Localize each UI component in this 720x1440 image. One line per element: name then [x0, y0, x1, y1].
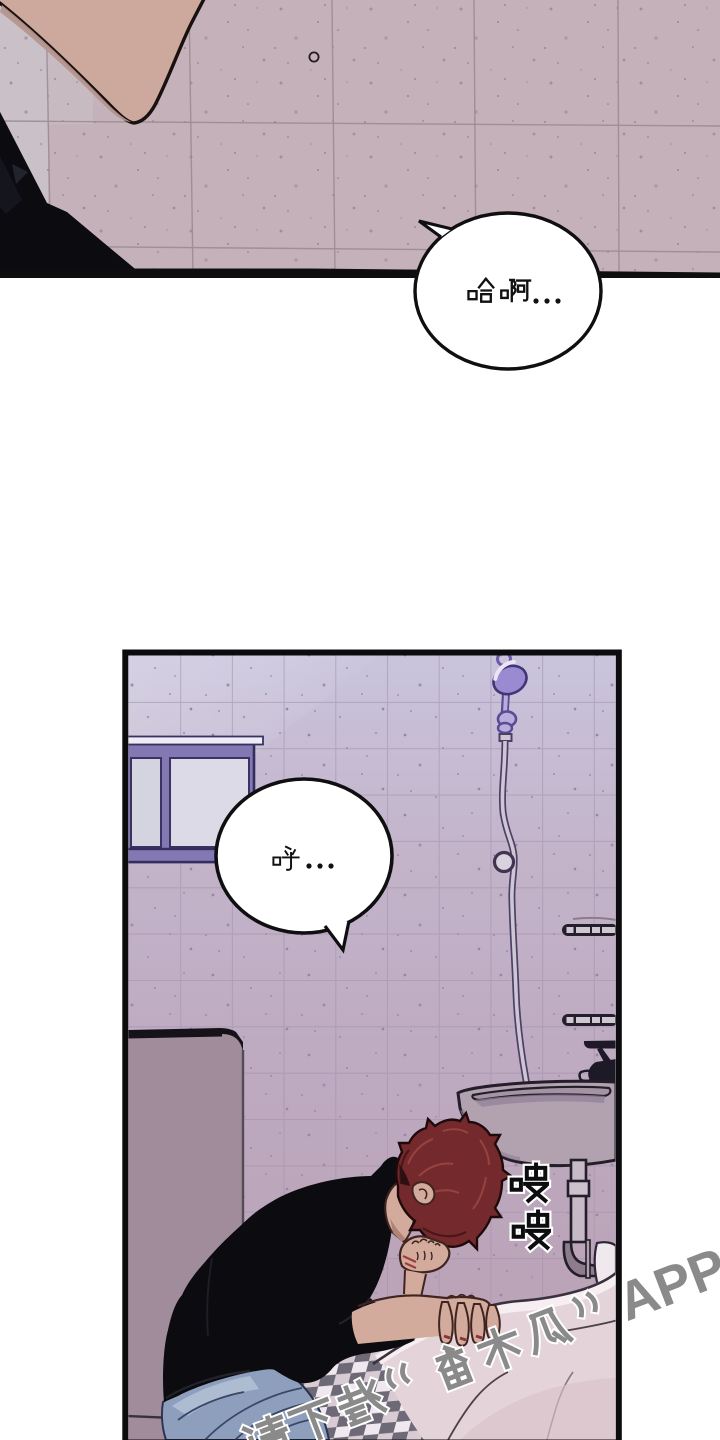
svg-text:APP: APP [610, 1237, 720, 1333]
